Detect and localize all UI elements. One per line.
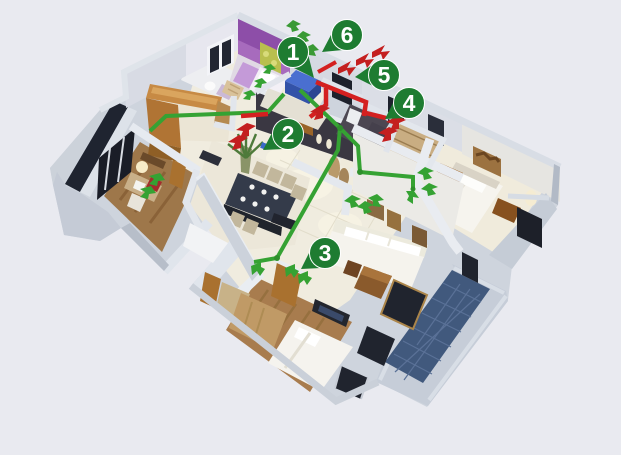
svg-text:2: 2 [282, 121, 295, 147]
svg-text:4: 4 [403, 90, 416, 116]
svg-text:6: 6 [341, 22, 354, 48]
svg-text:3: 3 [319, 240, 332, 266]
svg-text:1: 1 [287, 39, 300, 65]
svg-text:5: 5 [378, 62, 391, 88]
